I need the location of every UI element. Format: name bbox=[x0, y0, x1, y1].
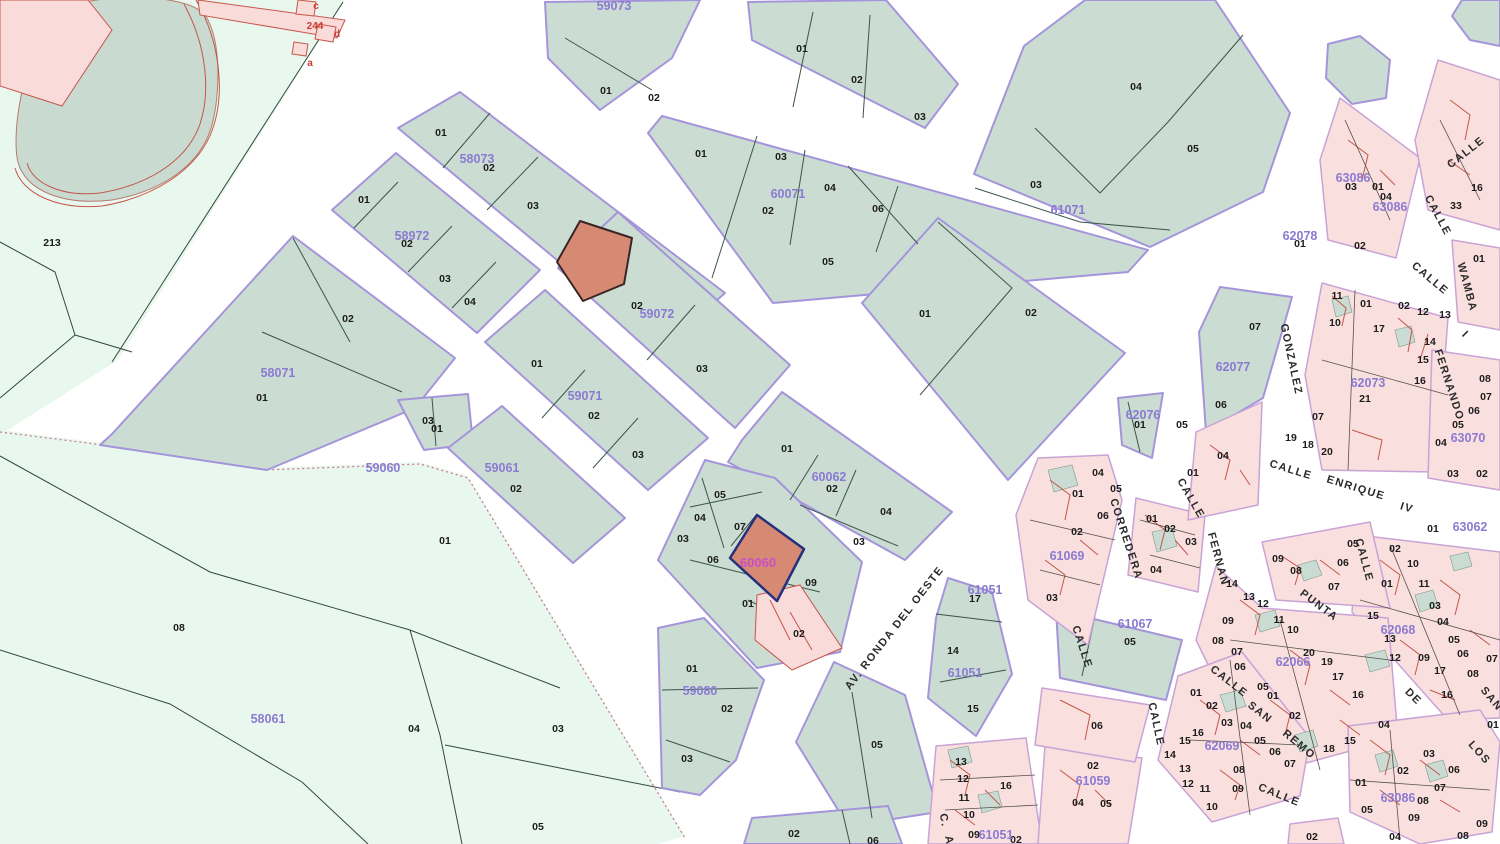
parcel-number-label: 01 bbox=[1267, 690, 1279, 702]
parcel-number-label: 14 bbox=[1164, 749, 1176, 761]
parcel-number-label: 03 bbox=[1423, 748, 1435, 760]
parcel-number-label: 01 bbox=[1427, 523, 1439, 535]
parcel-number-label: 03 bbox=[1221, 717, 1233, 729]
parcel-number-label: 02 bbox=[1206, 700, 1218, 712]
block-number-label: 62078 bbox=[1283, 229, 1318, 243]
parcel-number-label: 18 bbox=[1323, 743, 1335, 755]
parcel-number-label: 02 bbox=[721, 703, 733, 715]
parcel-number-label: 08 bbox=[1233, 764, 1245, 776]
block-number-label: 58073 bbox=[460, 152, 495, 166]
parcel-number-label: 04 bbox=[694, 512, 706, 524]
parcel-number-label: 03 bbox=[1429, 600, 1441, 612]
parcel-number-label: 16 bbox=[1000, 780, 1012, 792]
parcel-number-label: 05 bbox=[532, 821, 544, 833]
parcel-number-label: 07 bbox=[1480, 391, 1492, 403]
parcel-number-label: 02 bbox=[762, 205, 774, 217]
parcel-number-label: 02 bbox=[648, 92, 660, 104]
parcel-number-label: 03 bbox=[681, 753, 693, 765]
parcel-number-label: 12 bbox=[1182, 778, 1194, 790]
parcel-number-label: 11 bbox=[1199, 783, 1210, 795]
parcel-number-label: 04 bbox=[464, 296, 476, 308]
parcel-number-label: 05 bbox=[1176, 419, 1188, 431]
parcel-number-label: 04 bbox=[1378, 719, 1390, 731]
block-number-label: 62073 bbox=[1351, 376, 1386, 390]
parcel-number-label: 10 bbox=[1287, 624, 1299, 636]
parcel-number-label: 10 bbox=[963, 809, 975, 821]
parcel-number-label: 03 bbox=[1447, 468, 1459, 480]
block-number-label: 60062 bbox=[812, 470, 847, 484]
parcel-number-label: 05 bbox=[1100, 798, 1112, 810]
parcel-number-label: 08 bbox=[1417, 795, 1429, 807]
block-number-label: 58061 bbox=[251, 712, 286, 726]
parcel-number-label: 04 bbox=[408, 723, 420, 735]
parcel-number-label: 10 bbox=[1407, 558, 1419, 570]
parcel-number-label: 13 bbox=[1439, 309, 1451, 321]
block-number-label: 61059 bbox=[1076, 774, 1111, 788]
parcel-number-label: 06 bbox=[1468, 405, 1480, 417]
parcel-number-label: 01 bbox=[796, 43, 808, 55]
parcel-number-label: 06 bbox=[1234, 661, 1246, 673]
parcel-number-label: 01 bbox=[431, 423, 443, 435]
parcel-number-label: 08 bbox=[1479, 373, 1491, 385]
parcel-number-label: 01 bbox=[695, 148, 707, 160]
block-number-label: 58071 bbox=[261, 366, 296, 380]
parcel-number-label: 03 bbox=[696, 363, 708, 375]
parcel-number-label: 17 bbox=[1373, 323, 1385, 335]
parcel-number-label: 12 bbox=[957, 773, 969, 785]
parcel-number-label: 06 bbox=[872, 203, 884, 215]
parcel-number-label: 01 bbox=[742, 598, 754, 610]
parcel-number-label: 08 bbox=[173, 622, 185, 634]
block-number-label: 59072 bbox=[640, 307, 675, 321]
parcel-number-label: 08 bbox=[1290, 565, 1302, 577]
parcel-number-label: 13 bbox=[955, 756, 967, 768]
parcel-number-label: 05 bbox=[1110, 483, 1122, 495]
parcel-number-label: 03 bbox=[632, 449, 644, 461]
parcel-number-label: 03 bbox=[1185, 536, 1197, 548]
parcel-number-label: 09 bbox=[805, 577, 817, 589]
block-number-label: 61067 bbox=[1118, 617, 1153, 631]
rustic-subparcel-label: c bbox=[313, 1, 319, 12]
parcel-number-label: 07 bbox=[1328, 581, 1340, 593]
highlighted-block-number-label: 60060 bbox=[740, 555, 776, 570]
parcel-number-label: 10 bbox=[1329, 317, 1341, 329]
parcel-number-label: 03 bbox=[677, 533, 689, 545]
parcel-number-label: 03 bbox=[439, 273, 451, 285]
parcel-number-label: 04 bbox=[1437, 616, 1449, 628]
parcel-number-label: 06 bbox=[1269, 746, 1281, 758]
parcel-number-label: 04 bbox=[1072, 797, 1084, 809]
parcel-number-label: 01 bbox=[1473, 253, 1485, 265]
parcel-number-label: 20 bbox=[1321, 446, 1333, 458]
parcel-number-label: 02 bbox=[588, 410, 600, 422]
parcel-number-label: 213 bbox=[43, 237, 61, 249]
parcel-number-label: 14 bbox=[1424, 336, 1436, 348]
parcel-number-label: 02 bbox=[851, 74, 863, 86]
parcel-number-label: 02 bbox=[1289, 710, 1301, 722]
parcel-number-label: 11 bbox=[958, 792, 969, 804]
parcel-number-label: 15 bbox=[1367, 610, 1379, 622]
parcel-number-label: 01 bbox=[1360, 298, 1372, 310]
block-number-label: 59060 bbox=[366, 461, 401, 475]
parcel-number-label: 16 bbox=[1352, 689, 1364, 701]
parcel-number-label: 05 bbox=[714, 489, 726, 501]
parcel-number-label: 18 bbox=[1302, 439, 1314, 451]
parcel-number-label: 12 bbox=[1257, 598, 1269, 610]
parcel-number-label: 02 bbox=[1398, 300, 1410, 312]
parcel-number-label: 06 bbox=[1448, 764, 1460, 776]
parcel-number-label: 01 bbox=[1190, 687, 1202, 699]
parcel-number-label: 21 bbox=[1359, 393, 1371, 405]
parcel-number-label: 02 bbox=[1306, 831, 1318, 843]
parcel-number-label: 05 bbox=[1448, 634, 1460, 646]
block-number-label: 61069 bbox=[1050, 549, 1085, 563]
block-number-label: 62066 bbox=[1276, 655, 1311, 669]
parcel-number-label: 03 bbox=[552, 723, 564, 735]
block-number-label: 62076 bbox=[1126, 408, 1161, 422]
parcel-number-label: 04 bbox=[1240, 720, 1252, 732]
block-number-label: 61051 bbox=[979, 828, 1014, 842]
parcel-number-label: 16 bbox=[1441, 689, 1453, 701]
parcel-number-label: 19 bbox=[1321, 656, 1333, 668]
block-number-label: 61071 bbox=[1051, 203, 1086, 217]
block-number-label: 58972 bbox=[395, 229, 430, 243]
block-number-label: 61051 bbox=[948, 666, 983, 680]
parcel-number-label: 04 bbox=[1217, 450, 1229, 462]
parcel-number-label: 02 bbox=[788, 828, 800, 840]
parcel-number-label: 16 bbox=[1414, 375, 1426, 387]
parcel-number-label: 05 bbox=[1452, 419, 1464, 431]
rustic-subparcel-label: a bbox=[307, 58, 313, 69]
block-number-label: 63070 bbox=[1451, 431, 1486, 445]
parcel-number-label: 05 bbox=[1361, 804, 1373, 816]
parcel-number-label: 06 bbox=[1215, 399, 1227, 411]
parcel-number-label: 01 bbox=[686, 663, 698, 675]
block-number-label: 63062 bbox=[1453, 520, 1488, 534]
parcel-number-label: 09 bbox=[1222, 615, 1234, 627]
highlight-label-layer: 60060 bbox=[740, 555, 776, 570]
rustic-subparcel-label: 244 bbox=[307, 21, 324, 32]
parcel-number-label: 14 bbox=[947, 645, 959, 657]
parcel-number-label: 01 bbox=[600, 85, 612, 97]
parcel-number-label: 12 bbox=[1417, 306, 1429, 318]
block-number-label: 63086 bbox=[1336, 171, 1371, 185]
parcel-number-label: 15 bbox=[1179, 735, 1191, 747]
parcel-number-label: 07 bbox=[1434, 782, 1446, 794]
parcel-number-label: 02 bbox=[1025, 307, 1037, 319]
parcel-number-label: 09 bbox=[1408, 812, 1420, 824]
parcel-number-label: 09 bbox=[1476, 818, 1488, 830]
parcel-number-label: 11 bbox=[1331, 290, 1342, 302]
parcel-number-label: 03 bbox=[775, 151, 787, 163]
parcel-number-label: 07 bbox=[1284, 758, 1296, 770]
parcel-number-label: 01 bbox=[439, 535, 451, 547]
parcel-number-label: 19 bbox=[1285, 432, 1297, 444]
parcel-number-label: 04 bbox=[1092, 467, 1104, 479]
parcel-number-label: 04 bbox=[1389, 831, 1401, 843]
parcel-number-label: 05 bbox=[1187, 143, 1199, 155]
block-number-label: 59073 bbox=[597, 0, 632, 13]
block-number-label: 59071 bbox=[568, 389, 603, 403]
parcel-number-label: 03 bbox=[853, 536, 865, 548]
parcel-number-label: 01 bbox=[1381, 578, 1393, 590]
parcel-number-label: 17 bbox=[1434, 665, 1446, 677]
parcel-number-label: 01 bbox=[919, 308, 931, 320]
parcel-number-label: 04 bbox=[880, 506, 892, 518]
block-number-label: 63086 bbox=[1373, 200, 1408, 214]
parcel-number-label: 03 bbox=[1030, 179, 1042, 191]
parcel-number-label: 01 bbox=[1146, 513, 1158, 525]
parcel-number-label: 07 bbox=[734, 521, 746, 533]
parcel-number-label: 09 bbox=[1272, 553, 1284, 565]
parcel-number-label: 01 bbox=[435, 127, 447, 139]
street-name-label: A bbox=[942, 835, 955, 844]
parcel-number-label: 06 bbox=[1337, 557, 1349, 569]
parcel-number-label: 05 bbox=[822, 256, 834, 268]
parcel-number-label: 08 bbox=[1212, 635, 1224, 647]
parcel-number-label: 05 bbox=[1347, 538, 1359, 550]
parcel-number-label: 07 bbox=[1312, 411, 1324, 423]
parcel-number-label: 07 bbox=[1486, 653, 1498, 665]
parcel-number-label: 09 bbox=[1232, 783, 1244, 795]
parcel-number-label: 02 bbox=[1087, 760, 1099, 772]
parcel-number-label: 10 bbox=[1206, 801, 1218, 813]
parcel-number-label: 06 bbox=[1097, 510, 1109, 522]
block-number-label: 59080 bbox=[683, 684, 718, 698]
parcel-number-label: 14 bbox=[1226, 578, 1238, 590]
parcel-number-label: 05 bbox=[871, 739, 883, 751]
parcel-number-label: 01 bbox=[1187, 467, 1199, 479]
building-244-c bbox=[292, 42, 308, 56]
parcel-number-label: 04 bbox=[1150, 564, 1162, 576]
parcel-number-label: 04 bbox=[1130, 81, 1142, 93]
parcel-number-label: 03 bbox=[914, 111, 926, 123]
parcel-number-label: 02 bbox=[342, 313, 354, 325]
street-name-label: C. bbox=[937, 813, 951, 829]
parcel-number-label: 16 bbox=[1192, 727, 1204, 739]
block-number-label: 60071 bbox=[771, 187, 806, 201]
parcel-number-label: 02 bbox=[793, 628, 805, 640]
parcel-number-label: 04 bbox=[1435, 437, 1447, 449]
block-number-label: 63086 bbox=[1381, 791, 1416, 805]
parcel-number-label: 08 bbox=[1457, 830, 1469, 842]
parcel-number-label: 09 bbox=[1418, 652, 1430, 664]
parcel-number-label: 02 bbox=[1071, 526, 1083, 538]
block-number-label: 62068 bbox=[1381, 623, 1416, 637]
parcel-number-label: 16 bbox=[1471, 182, 1483, 194]
parcel-number-label: 01 bbox=[1487, 719, 1499, 731]
parcel-number-label: 07 bbox=[1231, 646, 1243, 658]
parcel-number-label: 11 bbox=[1418, 578, 1429, 590]
parcel-number-label: 02 bbox=[1397, 765, 1409, 777]
parcel-number-label: 02 bbox=[1476, 468, 1488, 480]
parcel-number-label: 15 bbox=[967, 703, 979, 715]
parcel-number-label: 01 bbox=[358, 194, 370, 206]
parcel-number-label: 01 bbox=[531, 358, 543, 370]
block-number-label: 62069 bbox=[1205, 739, 1240, 753]
block-number-label: 59061 bbox=[485, 461, 520, 475]
parcel-number-label: 02 bbox=[1164, 523, 1176, 535]
parcel-number-label: 06 bbox=[1457, 648, 1469, 660]
parcel-number-label: 02 bbox=[510, 483, 522, 495]
parcel-number-label: 02 bbox=[1389, 543, 1401, 555]
parcel-number-label: 06 bbox=[867, 835, 879, 844]
rustic-subparcel-label: d bbox=[334, 29, 340, 40]
parcel-number-label: 11 bbox=[1273, 614, 1284, 626]
parcel-number-label: 05 bbox=[1254, 735, 1266, 747]
parcel-number-label: 13 bbox=[1243, 591, 1255, 603]
parcel-number-label: 06 bbox=[707, 554, 719, 566]
block-number-label: 61051 bbox=[968, 583, 1003, 597]
parcel-number-label: 13 bbox=[1179, 763, 1191, 775]
parcel-number-label: 02 bbox=[826, 483, 838, 495]
parcel-number-label: 01 bbox=[256, 392, 268, 404]
parcel-number-label: 15 bbox=[1344, 735, 1356, 747]
parcel-number-label: 03 bbox=[527, 200, 539, 212]
parcel-number-label: 08 bbox=[1467, 668, 1479, 680]
parcel-number-label: 03 bbox=[1046, 592, 1058, 604]
parcel-number-label: 17 bbox=[1332, 671, 1344, 683]
parcel-number-label: 05 bbox=[1124, 636, 1136, 648]
cadastral-map[interactable]: AV. RONDA DEL OESTECORREDERACALLECALLEFE… bbox=[0, 0, 1500, 844]
parcel-number-label: 15 bbox=[1417, 354, 1429, 366]
cadastral-map-viewport[interactable]: AV. RONDA DEL OESTECORREDERACALLECALLEFE… bbox=[0, 0, 1500, 844]
parcel-number-label: 12 bbox=[1389, 652, 1401, 664]
block-number-label: 62077 bbox=[1216, 360, 1251, 374]
parcel-number-label: 01 bbox=[1072, 488, 1084, 500]
parcel-number-label: 01 bbox=[1355, 777, 1367, 789]
parcel-number-label: 02 bbox=[1354, 240, 1366, 252]
parcel-number-label: 07 bbox=[1249, 321, 1261, 333]
parcel-number-label: 04 bbox=[824, 182, 836, 194]
parcel-number-label: 06 bbox=[1091, 720, 1103, 732]
parcel-number-label: 33 bbox=[1450, 200, 1462, 212]
parcel-number-label: 01 bbox=[781, 443, 793, 455]
